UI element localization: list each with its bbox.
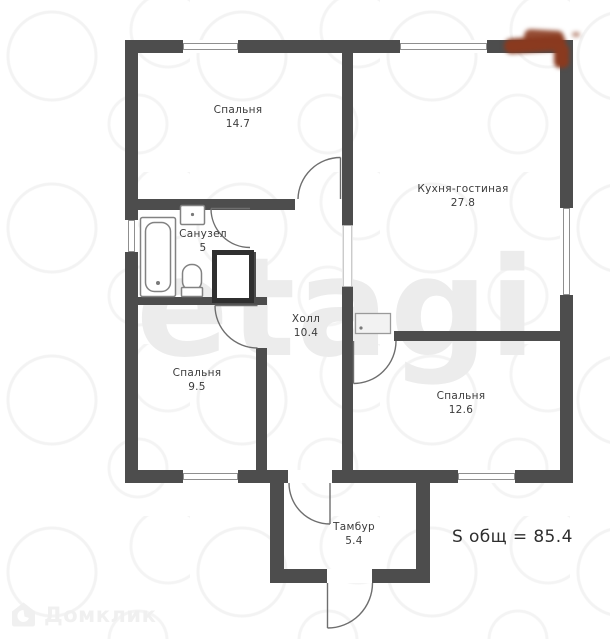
wall-kitchen-bedroom3 xyxy=(394,331,560,341)
window-bedroom3 xyxy=(458,470,515,483)
bathtub-drain-dot xyxy=(156,281,160,285)
gap-hall-vestibule xyxy=(288,470,332,483)
room-label-vestibule: Тамбур 5.4 xyxy=(333,520,375,548)
domclick-logo-text: Домклик xyxy=(44,603,156,627)
door-arc-bedroom1 xyxy=(298,158,341,200)
shower-cubicle-symbol xyxy=(215,253,252,301)
window-kitchen-top xyxy=(400,40,487,53)
agency-stamp-logo xyxy=(500,26,582,70)
boiler-box-symbol xyxy=(356,314,391,334)
room-label-bedroom1: Спальня 14.7 xyxy=(214,103,263,131)
door-arc-bedroom2 xyxy=(215,306,258,349)
room-label-hall: Холл 10.4 xyxy=(292,312,320,340)
room-label-kitchen-living: Кухня-гостиная 27.8 xyxy=(417,182,508,210)
wall-kitchen-left-lower xyxy=(342,287,353,470)
door-arc-bedroom3 xyxy=(354,341,397,384)
door-arc-entrance xyxy=(328,583,373,628)
total-area-label: S общ = 85.4 xyxy=(452,527,573,547)
room-label-bathroom: Санузел 5 xyxy=(179,227,227,255)
window-bedroom2 xyxy=(183,470,238,483)
wall-bathroom-right-top xyxy=(245,199,256,207)
floor-plan-page: etagi xyxy=(0,0,610,639)
domclick-logo: Домклик xyxy=(10,601,156,628)
domclick-house-icon xyxy=(10,601,37,628)
toilet-symbol xyxy=(183,265,202,291)
wall-outer-left xyxy=(125,40,138,483)
wall-vestibule-right xyxy=(416,483,430,583)
wall-bedroom2-right xyxy=(256,348,267,470)
room-label-bedroom3: Спальня 12.6 xyxy=(437,389,486,417)
window-kitchen-right xyxy=(560,208,573,295)
room-label-bedroom2: Спальня 9.5 xyxy=(173,366,222,394)
wall-vestibule-left xyxy=(270,483,284,583)
window-bathroom xyxy=(125,220,138,252)
wall-kitchen-left-upper xyxy=(342,53,353,225)
gap-entrance xyxy=(327,569,372,583)
window-bedroom1 xyxy=(183,40,238,53)
door-arc-vestibule xyxy=(289,483,330,524)
opening-hall-kitchen xyxy=(342,225,353,287)
doors xyxy=(211,158,396,629)
